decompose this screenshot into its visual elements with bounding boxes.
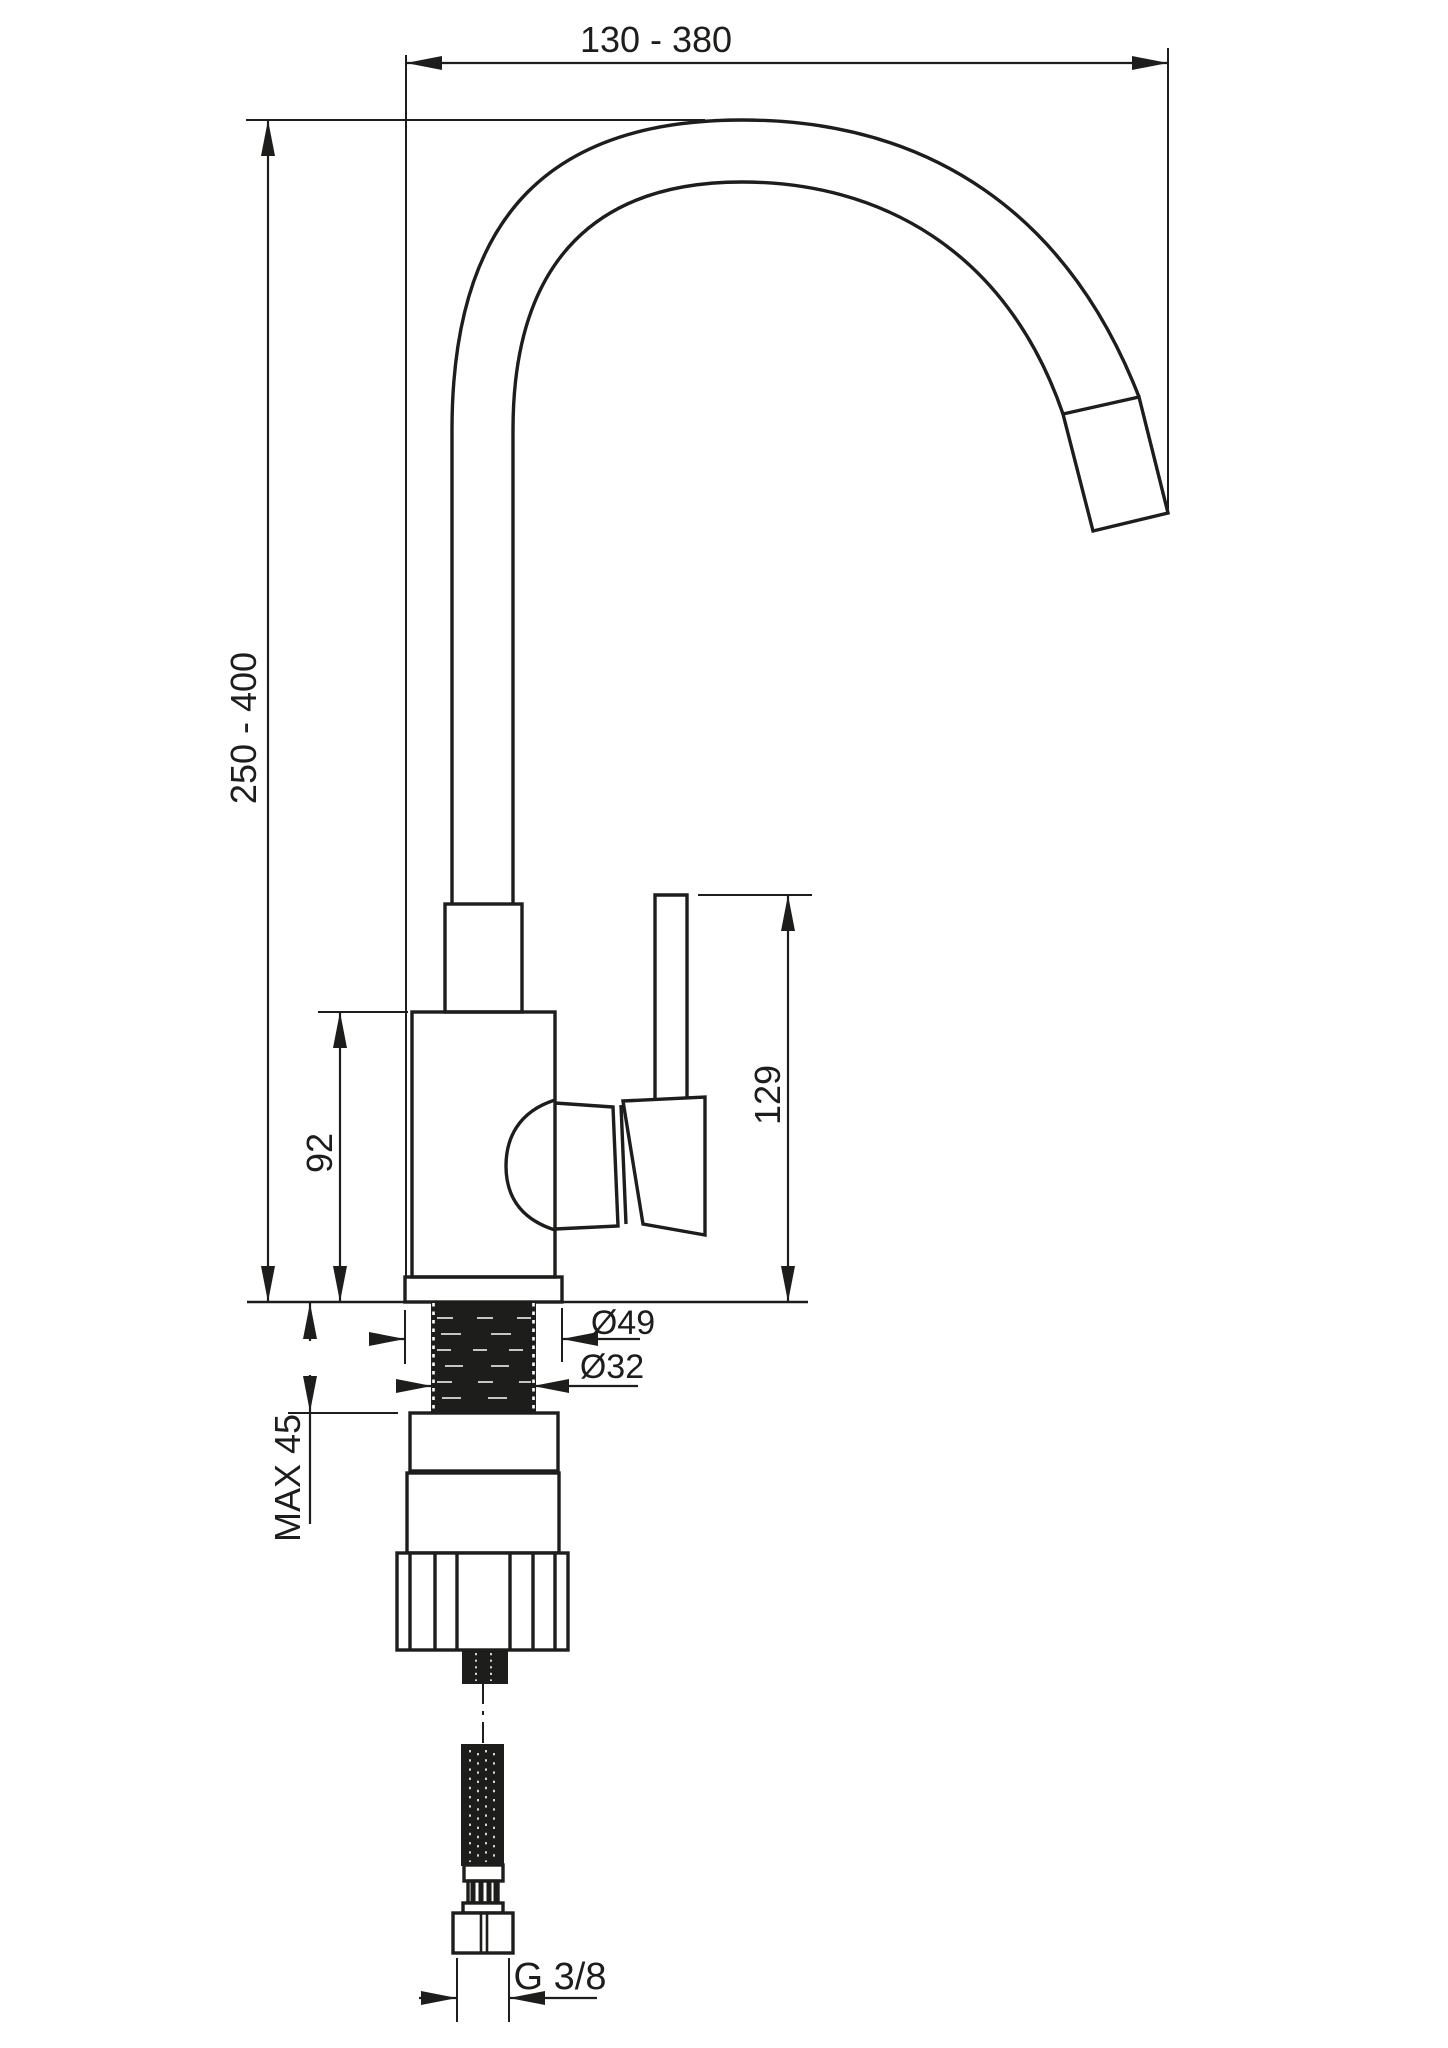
spout-outer-line [452, 120, 1139, 904]
hose-nut [453, 1913, 513, 1953]
dim-label-total-height: 250 - 400 [223, 652, 264, 804]
drawing-canvas: 130 - 380 250 - 400 92 129 Ø49 [0, 0, 1448, 2048]
riser-collar [445, 904, 522, 1012]
dim-label-base-diameter: Ø49 [591, 1304, 655, 1342]
dim-label-max-thickness: MAX 45 [267, 1414, 308, 1542]
handle-lever [655, 895, 687, 1101]
faucet-technical-drawing: 130 - 380 250 - 400 92 129 Ø49 [0, 0, 1448, 2048]
hose-ribs [468, 1881, 498, 1903]
dim-label-hose-connection: G 3/8 [514, 1956, 607, 1998]
dim-handle-height: 129 [698, 895, 812, 1302]
hose-ferrule [464, 1865, 503, 1881]
dim-label-shank-diameter: Ø32 [580, 1348, 644, 1386]
dim-body-height: 92 [299, 1012, 408, 1302]
dim-total-height: 250 - 400 [223, 120, 705, 1302]
dim-hose-connection: G 3/8 [419, 1956, 606, 2022]
dim-label-body-height: 92 [299, 1133, 340, 1173]
spout-inner-line [513, 182, 1063, 904]
dim-label-spout-reach: 130 - 380 [580, 19, 732, 60]
mounting-shank-thread [432, 1303, 535, 1413]
base-plate [405, 1277, 562, 1302]
dim-label-handle-height: 129 [747, 1065, 788, 1125]
handle-boss [506, 1100, 555, 1230]
hose-thread-stub [463, 1650, 507, 1683]
handle-grip [623, 1097, 705, 1235]
mounting-cone-upper [410, 1413, 558, 1471]
mounting-nut [397, 1553, 568, 1650]
spout-aerator [1063, 397, 1168, 531]
handle-boss-neck [555, 1103, 618, 1229]
supply-hose [462, 1745, 503, 1865]
mixer-body [412, 1012, 555, 1277]
mounting-cone-lower [407, 1473, 559, 1553]
